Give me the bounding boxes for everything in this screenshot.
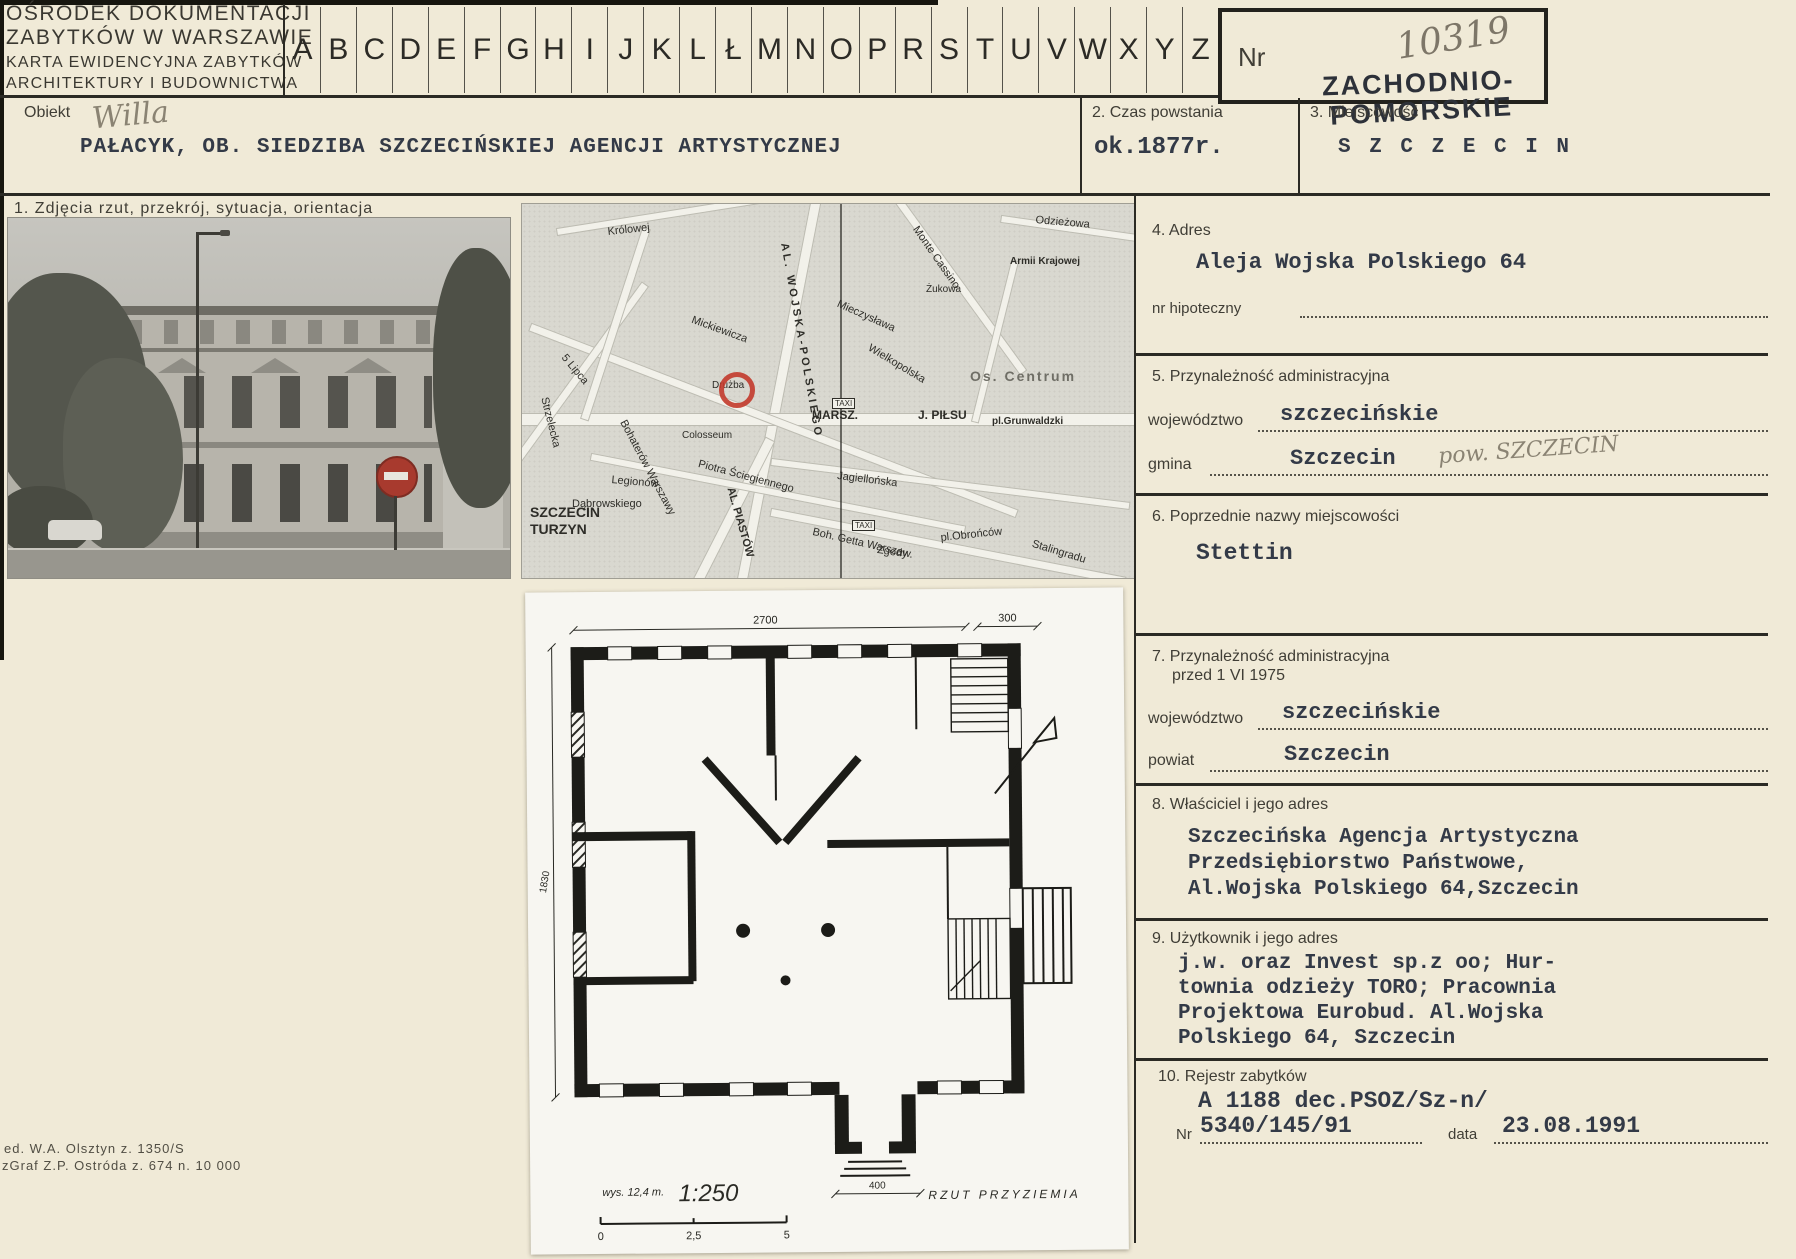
record-card-page: OŚRODEK DOKUMENTACJI ZABYTKÓW W WARSZAWI… xyxy=(0,0,1796,1259)
tree xyxy=(433,248,510,508)
card-title-line2: ARCHITEKTURY I BUDOWNICTWA xyxy=(6,75,298,93)
s5-rule xyxy=(1134,493,1768,496)
header-bottom-rule xyxy=(0,95,1218,98)
s4-label: 4. Adres xyxy=(1152,222,1211,240)
city-map: Królowej AL. WOJSKA-POLSKIEGO Monte Cass… xyxy=(522,204,1134,578)
plan-dim-porch: 400 xyxy=(869,1180,886,1191)
alphabet-letter: R xyxy=(896,7,932,93)
czas-label: 2. Czas powstania xyxy=(1092,104,1223,122)
s7-rule xyxy=(1134,783,1768,786)
plan-height-note: wys. 12,4 m. xyxy=(602,1186,664,1199)
alphabet-letter: P xyxy=(860,7,896,93)
street-lamp-pole xyxy=(196,232,199,552)
s5-gmina-value: Szczecin xyxy=(1290,446,1396,471)
s5-woj-value: szczecińskie xyxy=(1280,402,1438,427)
alphabet-letter: A xyxy=(285,7,321,93)
plan-dim-left: 1830 xyxy=(538,870,553,894)
institution-line2: ZABYTKÓW W WARSZAWIE xyxy=(6,26,313,50)
alphabet-letter: Z xyxy=(1183,7,1218,93)
s10-data-value: 23.08.1991 xyxy=(1502,1113,1640,1139)
s9-rule xyxy=(1134,1058,1768,1061)
alphabet-letter: T xyxy=(968,7,1004,93)
photo-car xyxy=(48,520,102,540)
alphabet-letter: O xyxy=(824,7,860,93)
map-city-label: TURZYN xyxy=(530,521,587,537)
column-divider xyxy=(1134,193,1136,1243)
s6-value: Stettin xyxy=(1196,540,1293,566)
s7-woj-dotted xyxy=(1258,728,1768,730)
s4-rule xyxy=(1134,353,1768,356)
alphabet-letter: X xyxy=(1111,7,1147,93)
alphabet-letter: I xyxy=(572,7,608,93)
s4-dotted-line xyxy=(1300,316,1768,318)
map-street-label: MARSZ. xyxy=(812,408,858,422)
map-street-label: Żukowa xyxy=(926,284,961,295)
s10-nr-dotted xyxy=(1200,1142,1422,1144)
s7-label-line1: 7. Przynależność administracyjna xyxy=(1152,648,1389,666)
alphabet-letter: E xyxy=(429,7,465,93)
s8-line2: Przedsiębiorstwo Państwowe, xyxy=(1188,852,1528,875)
s10-nr-label: Nr xyxy=(1176,1126,1192,1143)
main-rule xyxy=(0,193,1770,196)
alphabet-letter: Ł xyxy=(716,7,752,93)
s7-powiat-label: powiat xyxy=(1148,752,1194,770)
alphabet-letter: G xyxy=(501,7,537,93)
s6-label: 6. Poprzednie nazwy miejscowości xyxy=(1152,508,1399,526)
photo-villa-upper-windows xyxy=(136,376,432,428)
s10-data-dotted xyxy=(1494,1142,1768,1144)
map-street-label: Dąbrowskiego xyxy=(572,498,642,510)
s5-woj-dotted xyxy=(1258,430,1768,432)
row-divider-2 xyxy=(1298,98,1300,193)
miejscowosc-label: 3. Miejscowość xyxy=(1310,104,1418,122)
s5-label: 5. Przynależność administracyjna xyxy=(1152,368,1389,386)
s7-woj-label: województwo xyxy=(1148,710,1243,728)
card-title-line1: KARTA EWIDENCYJNA ZABYTKÓW xyxy=(6,54,302,72)
plan-scalebar-25: 2,5 xyxy=(686,1230,701,1242)
plan-dim-top: 2700 xyxy=(753,614,778,626)
plan-caption: RZUT PRZYZIEMIA xyxy=(928,1187,1080,1202)
alphabet-letter: K xyxy=(644,7,680,93)
location-marker-ring xyxy=(719,372,755,408)
alphabet-letter: H xyxy=(536,7,572,93)
s9-line2: townia odzieży TORO; Pracownia xyxy=(1178,977,1556,1000)
czas-value: ok.1877r. xyxy=(1094,134,1224,161)
alphabet-letter: U xyxy=(1003,7,1039,93)
s9-label: 9. Użytkownik i jego adres xyxy=(1152,930,1338,948)
alphabet-strip: A B C D E F G H I J K L Ł M N O P R S T … xyxy=(285,5,1218,95)
alphabet-letter: S xyxy=(932,7,968,93)
s10-line1: A 1188 dec.PSOZ/Sz-n/ xyxy=(1198,1088,1488,1114)
scan-edge-left xyxy=(0,0,4,660)
map-street-label: Armii Krajowej xyxy=(1010,256,1080,267)
nr-label: Nr xyxy=(1238,42,1265,73)
no-entry-pole xyxy=(394,496,397,550)
alphabet-letter: J xyxy=(608,7,644,93)
photo-villa-attic-band xyxy=(128,320,438,344)
alphabet-letter: L xyxy=(680,7,716,93)
map-square-label: pl.Grunwaldzki xyxy=(992,416,1063,427)
s9-line1: j.w. oraz Invest sp.z oo; Hur- xyxy=(1178,952,1556,975)
row-divider-1 xyxy=(1080,98,1082,193)
s7-woj-value: szczecińskie xyxy=(1282,700,1440,725)
s4-sub-label: nr hipoteczny xyxy=(1152,300,1241,317)
s7-powiat-value: Szczecin xyxy=(1284,742,1390,767)
plan-scalebar-0: 0 xyxy=(598,1231,604,1243)
s10-nr-value: 5340/145/91 xyxy=(1200,1113,1352,1139)
s10-data-label: data xyxy=(1448,1126,1477,1143)
no-entry-bar xyxy=(384,472,408,480)
alphabet-letter: V xyxy=(1039,7,1075,93)
s5-gmina-label: gmina xyxy=(1148,456,1192,474)
print-credit-line2: zGraf Z.P. Ostróda z. 674 n. 10 000 xyxy=(2,1158,241,1173)
plan-dim-top-right: 300 xyxy=(998,612,1016,624)
map-taxi-badge: TAXI xyxy=(832,398,855,409)
photos-caption: 1. Zdjęcia rzut, przekrój, sytuacja, ori… xyxy=(14,200,373,218)
alphabet-letter: C xyxy=(357,7,393,93)
s8-label: 8. Właściciel i jego adres xyxy=(1152,796,1328,814)
street-lamp-head xyxy=(220,230,230,236)
s10-label: 10. Rejestr zabytków xyxy=(1158,1068,1307,1086)
map-taxi-badge: TAXI xyxy=(852,520,875,531)
s9-line4: Polskiego 64, Szczecin xyxy=(1178,1027,1455,1050)
institution-line1: OŚRODEK DOKUMENTACJI xyxy=(6,2,311,26)
s6-rule xyxy=(1134,633,1768,636)
s4-value: Aleja Wojska Polskiego 64 xyxy=(1196,250,1526,275)
header-institution: OŚRODEK DOKUMENTACJI ZABYTKÓW W WARSZAWI… xyxy=(6,6,282,94)
map-district-label: Os. Centrum xyxy=(970,368,1076,384)
s8-line3: Al.Wojska Polskiego 64,Szczecin xyxy=(1188,878,1579,901)
floor-plan-drawing: 2700 300 1830 400 wys. 12,4 m. 1:250 0 2… xyxy=(525,587,1129,1254)
s5-gmina-handwritten: pow. SZCZECIN xyxy=(1437,432,1619,470)
map-street-label: J. PIŁSU xyxy=(918,408,967,422)
print-credit-line1: ed. W.A. Olsztyn z. 1350/S xyxy=(4,1141,185,1156)
alphabet-letter: D xyxy=(393,7,429,93)
alphabet-letter: B xyxy=(321,7,357,93)
alphabet-letter: N xyxy=(788,7,824,93)
obiekt-label: Obiekt xyxy=(24,104,70,122)
s5-gmina-dotted xyxy=(1210,474,1768,476)
map-fold-crease xyxy=(840,204,842,578)
miejscowosc-value: S Z C Z E C I N xyxy=(1338,136,1572,159)
alphabet-letter: W xyxy=(1075,7,1111,93)
map-poi-label: Colosseum xyxy=(682,430,732,441)
s5-woj-label: województwo xyxy=(1148,412,1243,430)
alphabet-letter: Y xyxy=(1147,7,1183,93)
s8-line1: Szczecińska Agencja Artystyczna xyxy=(1188,826,1579,849)
s7-label-line2: przed 1 VI 1975 xyxy=(1172,667,1285,685)
s7-powiat-dotted xyxy=(1210,770,1768,772)
obiekt-handwritten: Willa xyxy=(91,95,171,137)
photo-street xyxy=(8,548,510,578)
site-photo xyxy=(8,218,510,578)
object-title: PAŁACYK, OB. SIEDZIBA SZCZECIŃSKIEJ AGEN… xyxy=(80,136,842,159)
s9-line3: Projektowa Eurobud. Al.Wojska xyxy=(1178,1002,1543,1025)
alphabet-letter: M xyxy=(752,7,788,93)
plan-scale: 1:250 xyxy=(678,1180,739,1208)
photo-villa-attic-line xyxy=(123,348,443,352)
photo-villa-cornice xyxy=(116,306,450,315)
floor-plan-sheet: 2700 300 1830 400 wys. 12,4 m. 1:250 0 2… xyxy=(525,587,1129,1254)
s8-rule xyxy=(1134,918,1768,921)
alphabet-letter: F xyxy=(465,7,501,93)
plan-scalebar-5: 5 xyxy=(784,1229,790,1241)
